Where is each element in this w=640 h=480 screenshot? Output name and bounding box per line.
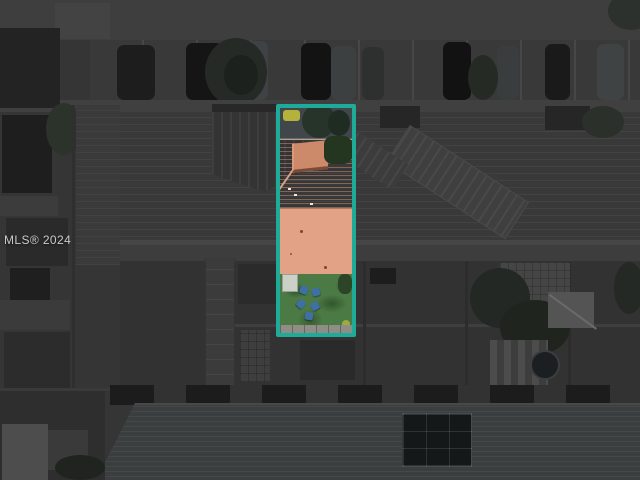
parked-car	[497, 46, 519, 100]
ac-unit	[370, 268, 396, 284]
property-highlight-box	[276, 104, 356, 337]
building-wall	[110, 385, 640, 405]
pavement-patch	[55, 3, 110, 39]
lounge-chair	[304, 311, 313, 320]
spa-tub	[530, 350, 560, 380]
parked-car	[545, 44, 570, 100]
parked-car	[443, 42, 471, 100]
roof-vent	[294, 194, 297, 196]
shrub	[338, 274, 352, 294]
neighbor-patio	[0, 300, 70, 330]
tree	[468, 55, 498, 100]
property-interior	[280, 108, 352, 333]
fence-line	[363, 262, 366, 388]
facade-shadow	[380, 106, 420, 128]
neighbor-panel	[10, 268, 50, 300]
flat-roof	[280, 208, 352, 275]
neighbor-patio	[0, 196, 58, 216]
roof-vent	[310, 203, 313, 205]
watermark: MLS® 2024	[4, 233, 71, 247]
neighbor-panel	[0, 28, 60, 108]
equipment-box	[282, 274, 298, 292]
shed-roof	[2, 424, 48, 480]
boundary-wall	[280, 325, 352, 333]
alley-strip	[120, 245, 640, 261]
tree	[224, 55, 258, 95]
parked-car	[301, 43, 331, 100]
neighbor-roof	[76, 105, 120, 265]
bottom-roof	[95, 403, 640, 480]
parked-car	[597, 44, 624, 100]
parked-car	[362, 47, 384, 100]
yellow-car	[283, 110, 300, 121]
fence-line	[0, 388, 110, 391]
parked-car	[331, 46, 356, 100]
solar-panel-array	[402, 413, 472, 467]
roof-vent	[288, 188, 291, 190]
yard-clutter	[300, 340, 355, 380]
tree	[614, 262, 640, 314]
roof-stain	[290, 253, 292, 255]
roof-stain	[300, 230, 303, 233]
neighbor-yard	[4, 332, 70, 388]
roof-stain	[324, 266, 327, 269]
tree-canopy	[328, 110, 350, 136]
roof-parapet	[292, 140, 328, 173]
checker-patio	[240, 330, 270, 382]
listing-photo[interactable]: MLS® 2024	[0, 0, 640, 480]
tree	[582, 106, 624, 138]
roof-foliage	[324, 136, 352, 164]
parked-car	[117, 45, 155, 100]
tree	[55, 455, 105, 480]
neighbor-panel	[2, 115, 52, 193]
fence-line	[465, 262, 468, 388]
